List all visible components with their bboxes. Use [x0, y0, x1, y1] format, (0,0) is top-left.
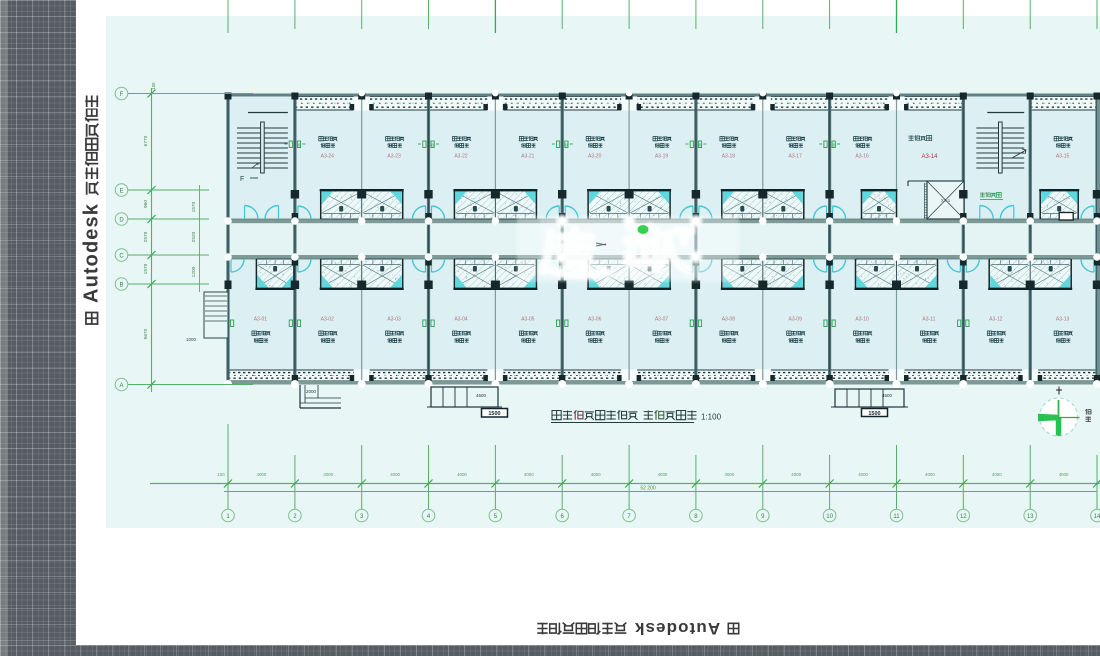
- svg-text:A: A: [119, 383, 123, 389]
- svg-text:B: B: [119, 282, 123, 288]
- svg-text:A3-09: A3-09: [789, 317, 803, 323]
- svg-text:A3-13: A3-13: [1056, 317, 1070, 323]
- svg-text:1570: 1570: [191, 201, 197, 212]
- svg-text:6770: 6770: [143, 135, 149, 146]
- svg-text:1500: 1500: [868, 411, 880, 417]
- svg-text:A3-23: A3-23: [387, 154, 401, 160]
- svg-text:4000: 4000: [323, 472, 333, 477]
- svg-text:960: 960: [143, 200, 149, 208]
- svg-text:E: E: [119, 188, 123, 194]
- svg-text:4500: 4500: [476, 393, 487, 398]
- svg-text:2000: 2000: [306, 389, 317, 394]
- svg-text:52 200: 52 200: [640, 486, 656, 492]
- svg-text:A3-24: A3-24: [321, 154, 335, 160]
- svg-text:10: 10: [826, 514, 833, 520]
- svg-text:1200: 1200: [191, 266, 197, 277]
- svg-text:14: 14: [1094, 514, 1100, 520]
- svg-text:A3-20: A3-20: [588, 154, 602, 160]
- svg-text:4000: 4000: [791, 472, 801, 477]
- svg-text:4500: 4500: [882, 393, 893, 398]
- svg-text:1570: 1570: [143, 263, 149, 274]
- svg-text:1:100: 1:100: [701, 413, 722, 422]
- svg-text:2570: 2570: [143, 231, 149, 242]
- svg-text:A3-08: A3-08: [722, 317, 736, 323]
- svg-text:11: 11: [893, 514, 900, 520]
- svg-text:4000: 4000: [725, 472, 735, 477]
- svg-text:4000: 4000: [658, 472, 668, 477]
- svg-text:150: 150: [151, 82, 156, 90]
- svg-text:100: 100: [217, 472, 225, 477]
- svg-text:A3-06: A3-06: [588, 317, 602, 323]
- svg-text:A3-01: A3-01: [254, 317, 268, 323]
- svg-text:4000: 4000: [1059, 472, 1069, 477]
- svg-text:A3-14: A3-14: [921, 154, 938, 160]
- svg-text:A3-21: A3-21: [521, 154, 535, 160]
- svg-text:2520: 2520: [191, 231, 197, 242]
- svg-text:4000: 4000: [390, 472, 400, 477]
- svg-text:4000: 4000: [925, 472, 935, 477]
- svg-text:A3-05: A3-05: [521, 317, 535, 323]
- svg-text:A3-03: A3-03: [387, 317, 401, 323]
- svg-text:4000: 4000: [257, 472, 267, 477]
- svg-text:A3-10: A3-10: [855, 317, 869, 323]
- svg-text:1000: 1000: [186, 337, 197, 342]
- svg-text:F: F: [120, 92, 124, 98]
- svg-text:A3-15: A3-15: [1056, 154, 1070, 160]
- svg-text:4000: 4000: [524, 472, 534, 477]
- svg-text:A3-17: A3-17: [789, 154, 803, 160]
- svg-text:1500: 1500: [488, 411, 500, 417]
- svg-text:4000: 4000: [992, 472, 1002, 477]
- svg-text:F: F: [240, 176, 244, 183]
- svg-text:4000: 4000: [858, 472, 868, 477]
- svg-text:4000: 4000: [457, 472, 467, 477]
- svg-text:A3-19: A3-19: [655, 154, 669, 160]
- svg-text:A3-12: A3-12: [989, 317, 1003, 323]
- svg-text:5670: 5670: [143, 328, 149, 339]
- svg-text:4000: 4000: [591, 472, 601, 477]
- svg-text:D: D: [119, 217, 124, 223]
- svg-text:A3-11: A3-11: [922, 317, 935, 323]
- svg-text:XT-1: XT-1: [941, 198, 951, 203]
- svg-text:A3-04: A3-04: [454, 317, 468, 323]
- svg-text:12: 12: [960, 514, 967, 520]
- svg-text:A3-16: A3-16: [855, 154, 869, 160]
- svg-text:13: 13: [1027, 514, 1034, 520]
- svg-text:A3-02: A3-02: [321, 317, 335, 323]
- svg-text:A3-18: A3-18: [722, 154, 736, 160]
- svg-text:A3-22: A3-22: [454, 154, 468, 160]
- svg-text:C: C: [119, 253, 124, 259]
- svg-text:A3-07: A3-07: [655, 317, 669, 323]
